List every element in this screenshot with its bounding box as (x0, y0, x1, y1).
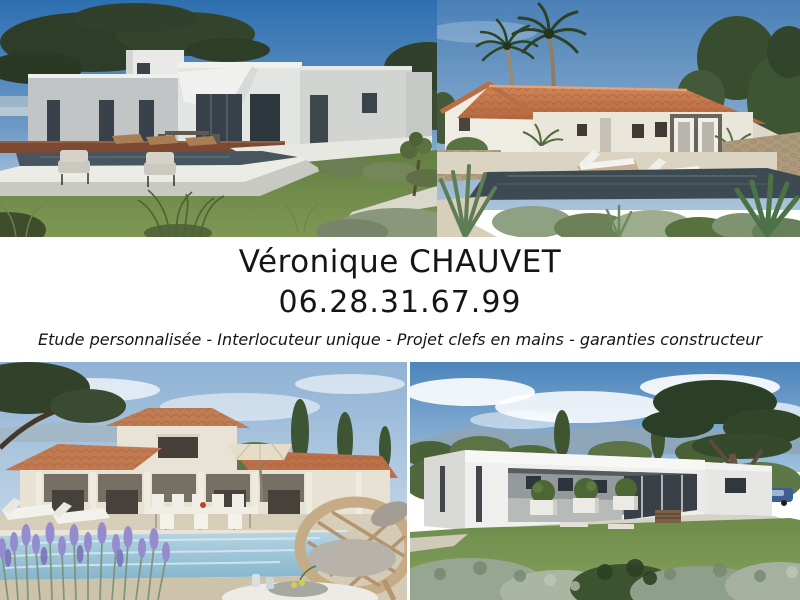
photo-top-left (0, 0, 437, 237)
photo-row-top (0, 0, 800, 237)
contact-tagline: Etude personnalisée - Interlocuteur uniq… (38, 326, 762, 354)
contact-phone: 06.28.31.67.99 (278, 283, 521, 323)
photo-row-bottom (0, 362, 800, 600)
contact-band: Véronique CHAUVET 06.28.31.67.99 Etude p… (0, 237, 800, 362)
flyer: Véronique CHAUVET 06.28.31.67.99 Etude p… (0, 0, 800, 600)
photo-bottom-right (410, 362, 800, 600)
photo-top-right (437, 0, 800, 237)
photo-bottom-left (0, 362, 407, 600)
contact-name: Véronique CHAUVET (239, 242, 562, 283)
